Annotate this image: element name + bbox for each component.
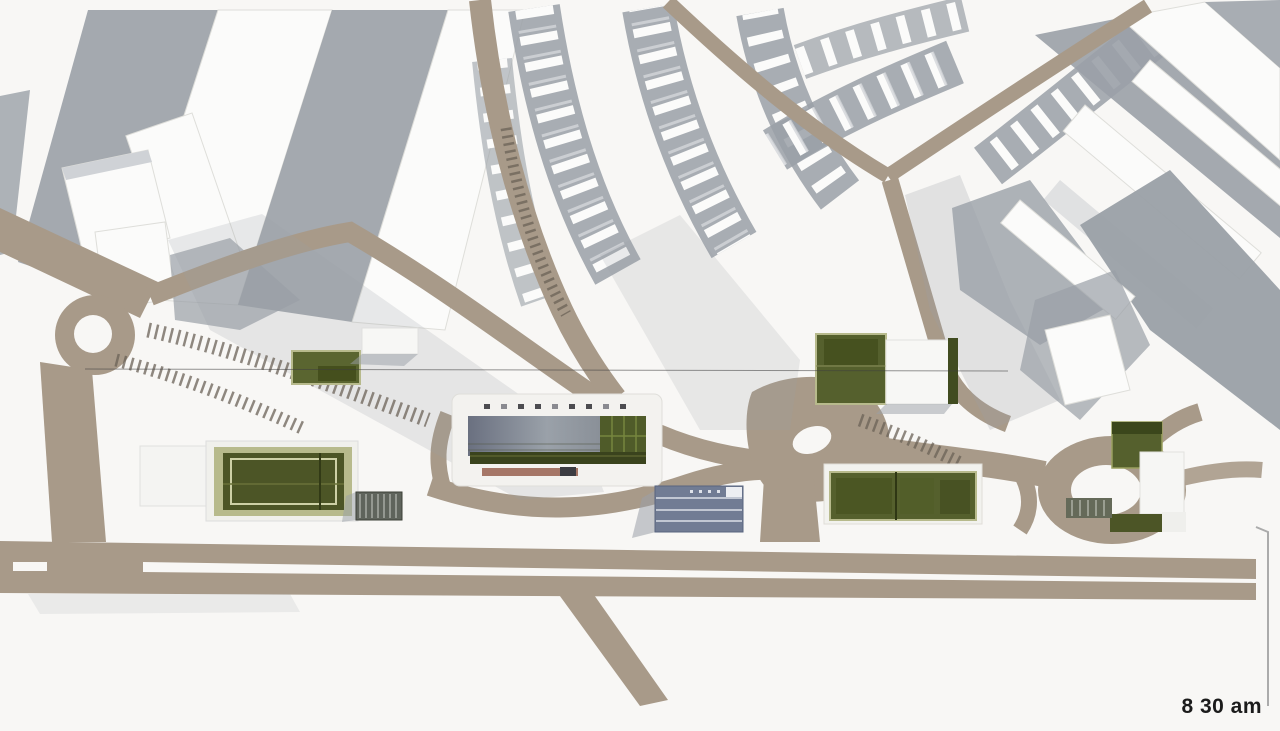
- rooftop-units: [484, 404, 626, 409]
- west-green-roof-building: [206, 441, 358, 521]
- west-louver-structure: [342, 492, 402, 522]
- site-plan-canvas: 8 30 am: [0, 0, 1280, 731]
- central-glass-building: [452, 394, 662, 486]
- site-plan-shadow-study: 8 30 am: [0, 0, 1280, 731]
- east-lower-green-building: [824, 464, 982, 524]
- upper-green-roof-building: [292, 351, 360, 384]
- east-louver-structure: [1066, 498, 1112, 518]
- west-white-building: [140, 446, 214, 506]
- east-upper-white-building: [876, 338, 958, 414]
- timestamp-label: 8 30 am: [1181, 695, 1262, 718]
- east-upper-green-building: [816, 334, 886, 404]
- junction-to-boulevard-road: [760, 478, 820, 542]
